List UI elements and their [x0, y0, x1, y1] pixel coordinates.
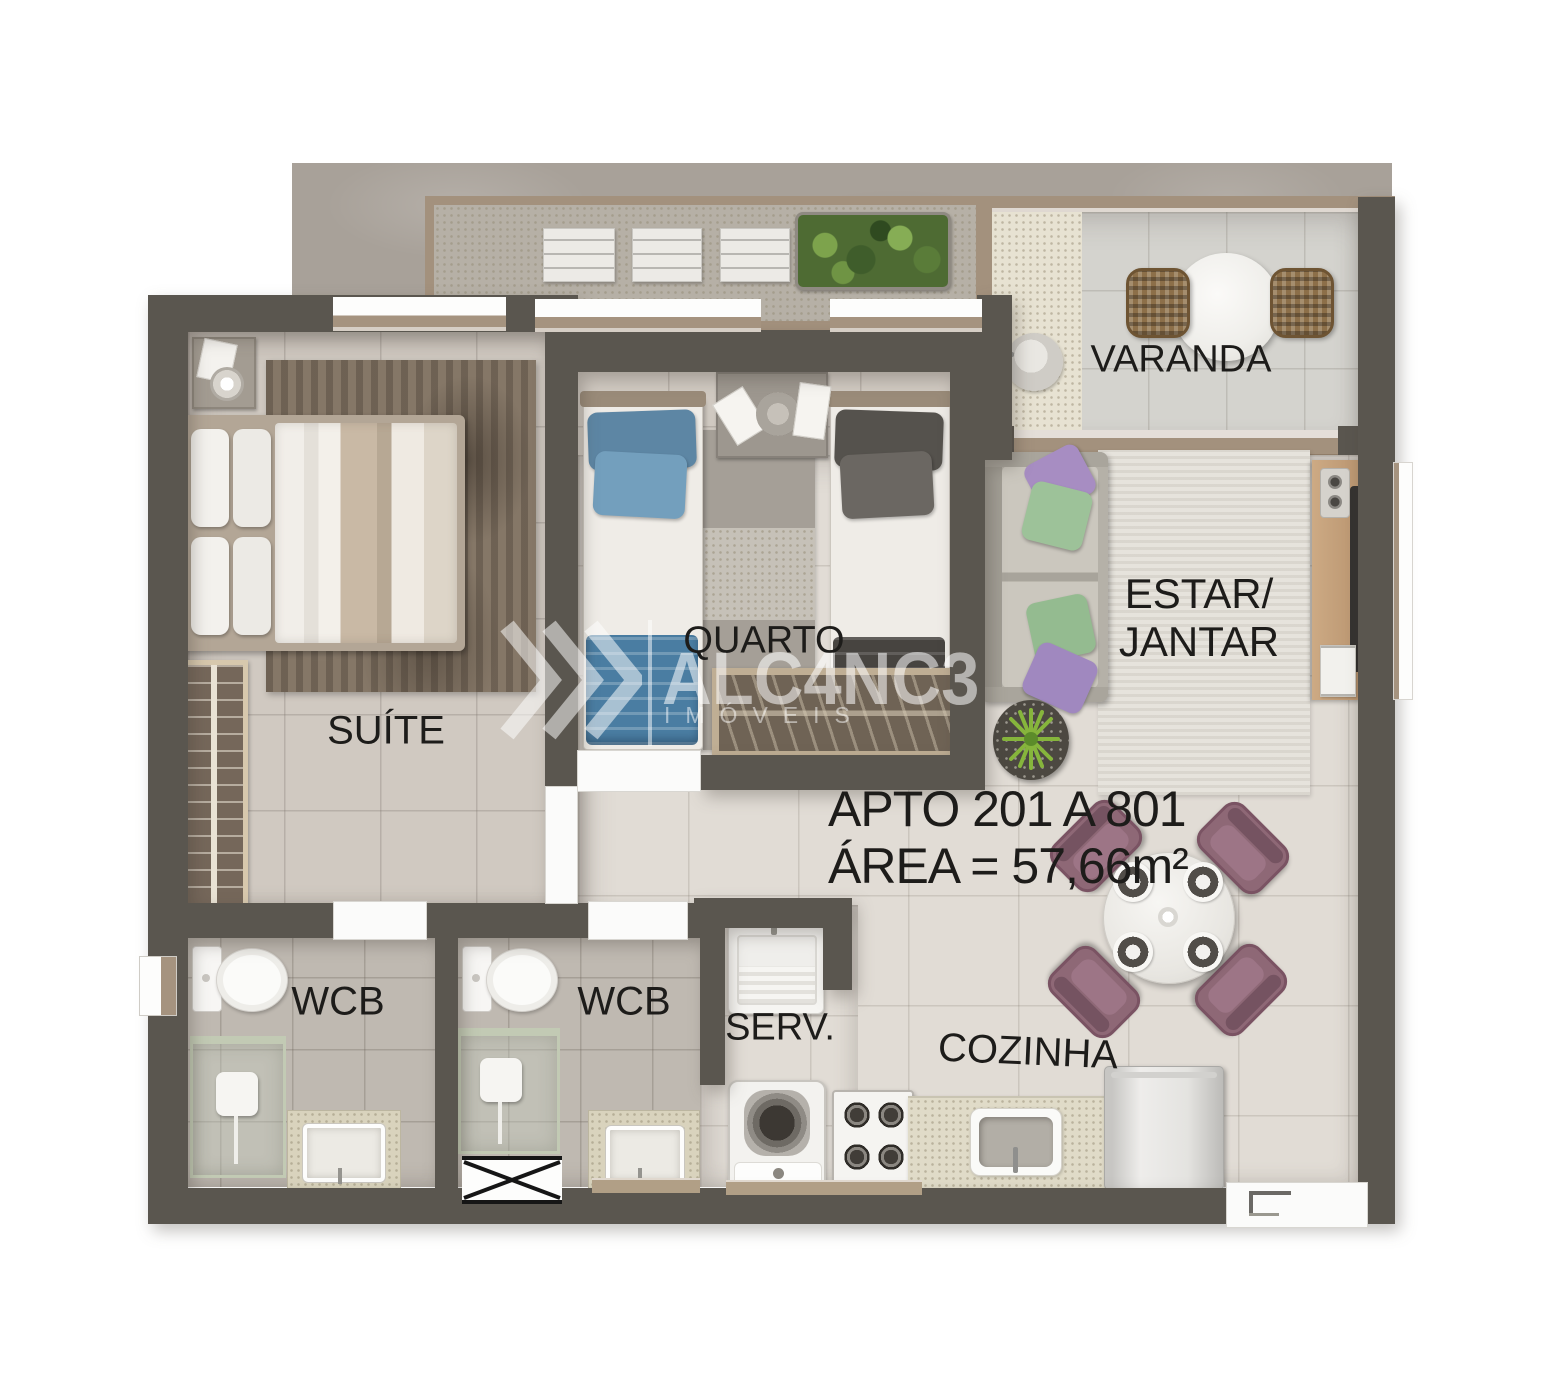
watermark-divider: [648, 620, 652, 746]
chevrons-icon: [497, 620, 642, 740]
watermark-layer: ALC4NC3 IMÓVEIS: [0, 0, 1545, 1375]
watermark-subtitle: IMÓVEIS: [664, 702, 865, 729]
floor-plan: VARANDA SUÍTE QUARTO ESTAR/ JANTAR WCB W…: [0, 0, 1545, 1375]
